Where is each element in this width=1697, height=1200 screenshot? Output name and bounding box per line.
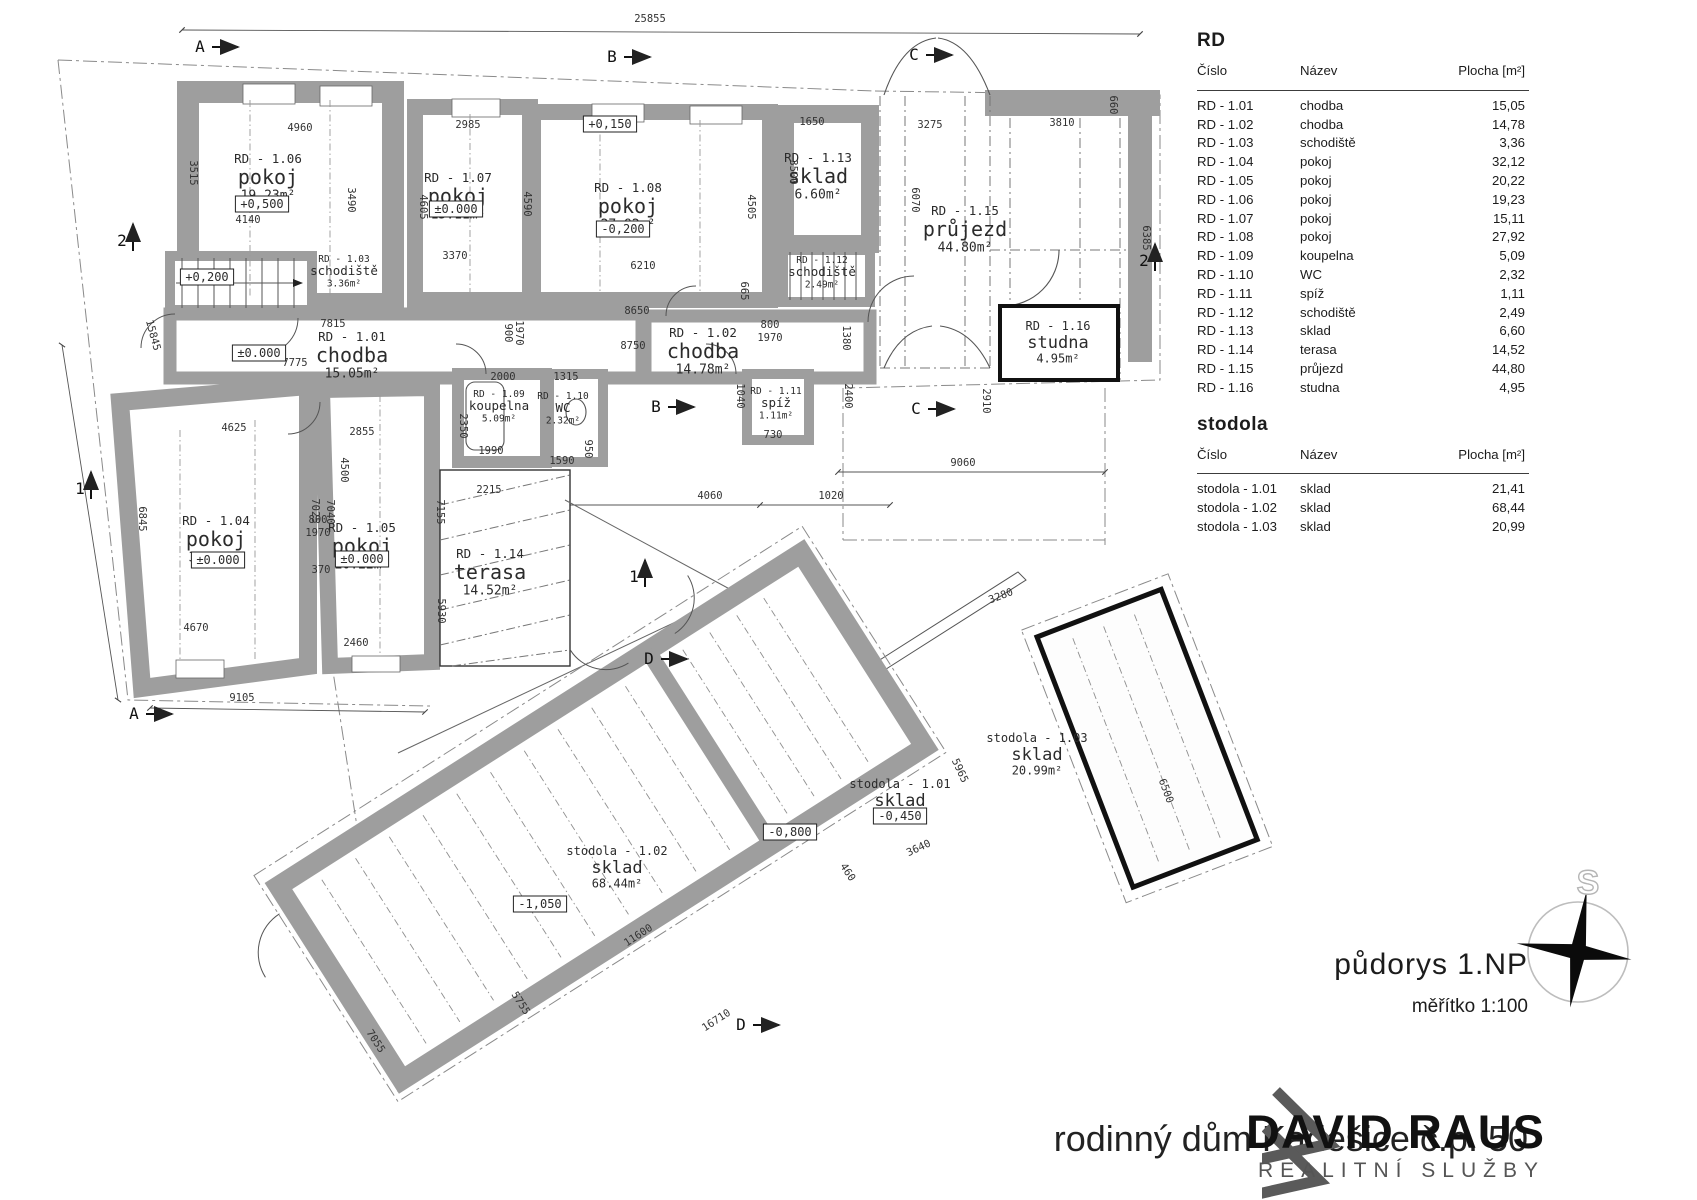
room-legend: RD Číslo Název Plocha [m²] RD - 1.01chod… [1197, 30, 1529, 537]
dim-label: 2985 [455, 119, 480, 131]
section-marker: B [607, 47, 617, 66]
drawing-title: půdorys 1.NP [908, 948, 1528, 982]
room-id-label: stodola - 1.02 [566, 844, 667, 858]
section-marker: 2 [1139, 251, 1149, 270]
table-row: RD - 1.08pokoj27,92 [1197, 228, 1529, 247]
room-name-label: chodba [667, 339, 739, 363]
dim-label: 9060 [950, 457, 975, 469]
table-row: RD - 1.09koupelna5,09 [1197, 247, 1529, 266]
dim-label: 1040 [734, 383, 746, 408]
compass-icon: S [1509, 864, 1640, 1015]
table-row: RD - 1.12schodiště2,49 [1197, 304, 1529, 323]
room-name-label: sklad [1011, 745, 1062, 765]
dim-label: 9105 [229, 692, 254, 704]
room-id-label: RD - 1.05 [328, 520, 396, 535]
table-row: RD - 1.14terasa14,52 [1197, 341, 1529, 360]
room-name-label: studna [1027, 333, 1088, 353]
dim-label: 3500 [787, 159, 799, 184]
table-row: RD - 1.04pokoj32,12 [1197, 153, 1529, 172]
dim-label: 1990 [478, 445, 503, 457]
room-id-label: stodola - 1.03 [986, 731, 1087, 745]
dim-label: 8650 [624, 305, 649, 317]
dim-label: 7155 [434, 499, 446, 524]
dim-label: 4670 [183, 622, 208, 634]
dim-label: 4140 [235, 214, 260, 226]
dim-label: 730 [764, 429, 783, 441]
dim-label: 7040 [324, 499, 336, 524]
table-row: RD - 1.05pokoj20,22 [1197, 172, 1529, 191]
elevation-label: -1,050 [518, 897, 561, 911]
room-name-label: pokoj [238, 165, 298, 189]
room-id-label: RD - 1.14 [456, 546, 524, 561]
dim-label: 3640 [905, 837, 933, 859]
room-area-label: 5.09m² [482, 414, 516, 425]
dim-label: 660 [1107, 96, 1119, 115]
table-row: RD - 1.03schodiště3,36 [1197, 134, 1529, 153]
dim-label: 1970 [513, 320, 525, 345]
dim-label: 6385 [1140, 225, 1152, 250]
dim-label: 3515 [187, 160, 199, 185]
dim-label: 7025 [309, 498, 321, 523]
table-row: RD - 1.10WC2,32 [1197, 266, 1529, 285]
dim-label: 800 [761, 319, 780, 331]
dim-label: 4590 [521, 191, 533, 216]
elevation-label: +0,150 [588, 117, 631, 131]
room-area-label: 44.80m² [938, 241, 993, 256]
dim-label: 1380 [840, 325, 852, 350]
section-marker: D [736, 1015, 746, 1034]
section-marker: A [195, 37, 205, 56]
room-area-label: 20.99m² [1012, 763, 1063, 777]
room-name-label: koupelna [469, 398, 529, 413]
room-id-label: RD - 1.16 [1025, 319, 1090, 333]
room-id-label: RD - 1.02 [669, 325, 737, 340]
room-name-label: WC [555, 400, 570, 415]
dim-label: 1590 [549, 455, 574, 467]
dim-label: 2400 [842, 383, 854, 408]
drawing-scale: měřítko 1:100 [908, 996, 1528, 1018]
legend-stodola-title: stodola [1197, 414, 1529, 436]
room-name-label: chodba [316, 343, 388, 367]
elevation-label: ±0.000 [196, 553, 239, 567]
dim-label: 4605 [417, 194, 429, 219]
dim-label: 2215 [476, 484, 501, 496]
dim-label: 370 [312, 564, 331, 576]
table-row: RD - 1.06pokoj19,23 [1197, 191, 1529, 210]
table-row: stodola - 1.03sklad20,99 [1197, 518, 1529, 537]
room-id-label: RD - 1.01 [318, 329, 386, 344]
room-id-label: RD - 1.04 [182, 513, 250, 528]
legend-stodola-rows: stodola - 1.01sklad21,41stodola - 1.02sk… [1197, 480, 1529, 536]
dim-label: 2000 [490, 371, 515, 383]
room-name-label: pokoj [186, 527, 246, 551]
dim-label: 2350 [457, 413, 469, 438]
dim-label: 4960 [287, 122, 312, 134]
room-id-label: RD - 1.15 [931, 203, 999, 218]
dim-label: 1020 [818, 490, 843, 502]
legend-rd-header: Číslo Název Plocha [m²] [1197, 62, 1529, 81]
dim-label: 2460 [343, 637, 368, 649]
dim-label: 6845 [136, 506, 148, 531]
room-area-label: 68.44m² [592, 876, 643, 890]
dim-label: 16710 [700, 1007, 733, 1034]
dim-label: 6210 [630, 260, 655, 272]
section-marker: D [644, 649, 654, 668]
section-marker: 1 [75, 479, 85, 498]
dim-label: 7775 [282, 357, 307, 369]
dim-label: 7815 [320, 318, 345, 330]
elevation-label: ±0.000 [434, 202, 477, 216]
section-marker: 2 [117, 231, 127, 250]
room-area-label: 14.78m² [676, 363, 731, 378]
room-name-label: spíž [761, 395, 791, 410]
elevation-label: +0,200 [185, 270, 228, 284]
dim-label: 900 [502, 324, 514, 343]
room-name-label: průjezd [923, 217, 1007, 241]
room-name-label: schodiště [310, 263, 378, 278]
table-row: RD - 1.11spíž1,11 [1197, 285, 1529, 304]
room-name-label: pokoj [598, 194, 658, 218]
table-row: RD - 1.02chodba14,78 [1197, 116, 1529, 135]
section-marker: A [129, 704, 139, 723]
room-area-label: 1.11m² [759, 411, 793, 422]
dim-label: 8750 [620, 340, 645, 352]
dim-label: 4505 [745, 194, 757, 219]
dim-label: 460 [837, 861, 857, 883]
dim-label: 1970 [757, 332, 782, 344]
dim-label: 2910 [980, 388, 992, 413]
compass-north-label: S [1577, 864, 1600, 902]
room-area-label: 2.49m² [805, 280, 839, 291]
dim-label: 1970 [305, 527, 330, 539]
dim-label: 3370 [442, 250, 467, 262]
dim-label: 25855 [634, 13, 666, 25]
room-name-label: schodiště [788, 264, 856, 279]
legend-rd-rows: RD - 1.01chodba15,05RD - 1.02chodba14,78… [1197, 97, 1529, 398]
dim-label: 665 [738, 282, 750, 301]
elevation-label: +0,500 [240, 197, 283, 211]
room-area-label: 3.36m² [327, 279, 361, 290]
dim-label: 3810 [1049, 117, 1074, 129]
room-id-label: RD - 1.06 [234, 151, 302, 166]
dim-label: 3275 [917, 119, 942, 131]
dim-label: 4060 [697, 490, 722, 502]
legend-rd-title: RD [1197, 30, 1529, 52]
table-row: stodola - 1.02sklad68,44 [1197, 499, 1529, 518]
dim-label: 5930 [435, 598, 447, 623]
elevation-label: -0,800 [768, 825, 811, 839]
table-row: stodola - 1.01sklad21,41 [1197, 480, 1529, 499]
section-marker: C [909, 45, 919, 64]
dim-label: 4625 [221, 422, 246, 434]
elevation-label: -0,450 [878, 809, 921, 823]
room-area-label: 6.60m² [795, 188, 842, 203]
section-marker: C [911, 399, 921, 418]
table-row: RD - 1.13sklad6,60 [1197, 322, 1529, 341]
elevation-label: -0,200 [601, 222, 644, 236]
room-name-label: terasa [454, 560, 526, 584]
room-area-label: 4.95m² [1036, 351, 1079, 365]
table-row: RD - 1.16studna4,95 [1197, 379, 1529, 398]
elevation-label: ±0.000 [340, 552, 383, 566]
table-row: RD - 1.07pokoj15,11 [1197, 210, 1529, 229]
room-area-label: 2.32m² [546, 416, 580, 427]
room-name-label: sklad [591, 858, 642, 878]
legend-stodola-header: Číslo Název Plocha [m²] [1197, 446, 1529, 465]
table-row: RD - 1.15průjezd44,80 [1197, 360, 1529, 379]
title-block: půdorys 1.NP měřítko 1:100 [908, 948, 1528, 1018]
legend-divider [1197, 473, 1529, 474]
dim-label: 5965 [949, 757, 971, 785]
dim-label: 950 [582, 440, 594, 459]
room-area-label: 15.05m² [325, 367, 380, 382]
room-id-label: stodola - 1.01 [849, 777, 950, 791]
section-marker: 1 [629, 567, 639, 586]
legend-divider [1197, 90, 1529, 91]
room-id-label: RD - 1.08 [594, 180, 662, 195]
room-id-label: RD - 1.07 [424, 170, 492, 185]
floorplan-sheet: S RD - 1.06pokoj19.23m²RD - 1.07pokoj15.… [0, 0, 1697, 1200]
dim-label: 3490 [345, 187, 357, 212]
room-area-label: 14.52m² [463, 584, 518, 599]
dim-label: 4500 [338, 457, 350, 482]
dim-label: 1650 [799, 116, 824, 128]
watermark-logo-icon [1262, 1085, 1382, 1200]
dim-label: 2855 [349, 426, 374, 438]
elevation-label: ±0.000 [237, 346, 280, 360]
dim-label: 6070 [909, 187, 921, 212]
section-marker: B [651, 397, 661, 416]
table-row: RD - 1.01chodba15,05 [1197, 97, 1529, 116]
dim-label: 1315 [553, 371, 578, 383]
dim-label: 15845 [143, 318, 163, 352]
